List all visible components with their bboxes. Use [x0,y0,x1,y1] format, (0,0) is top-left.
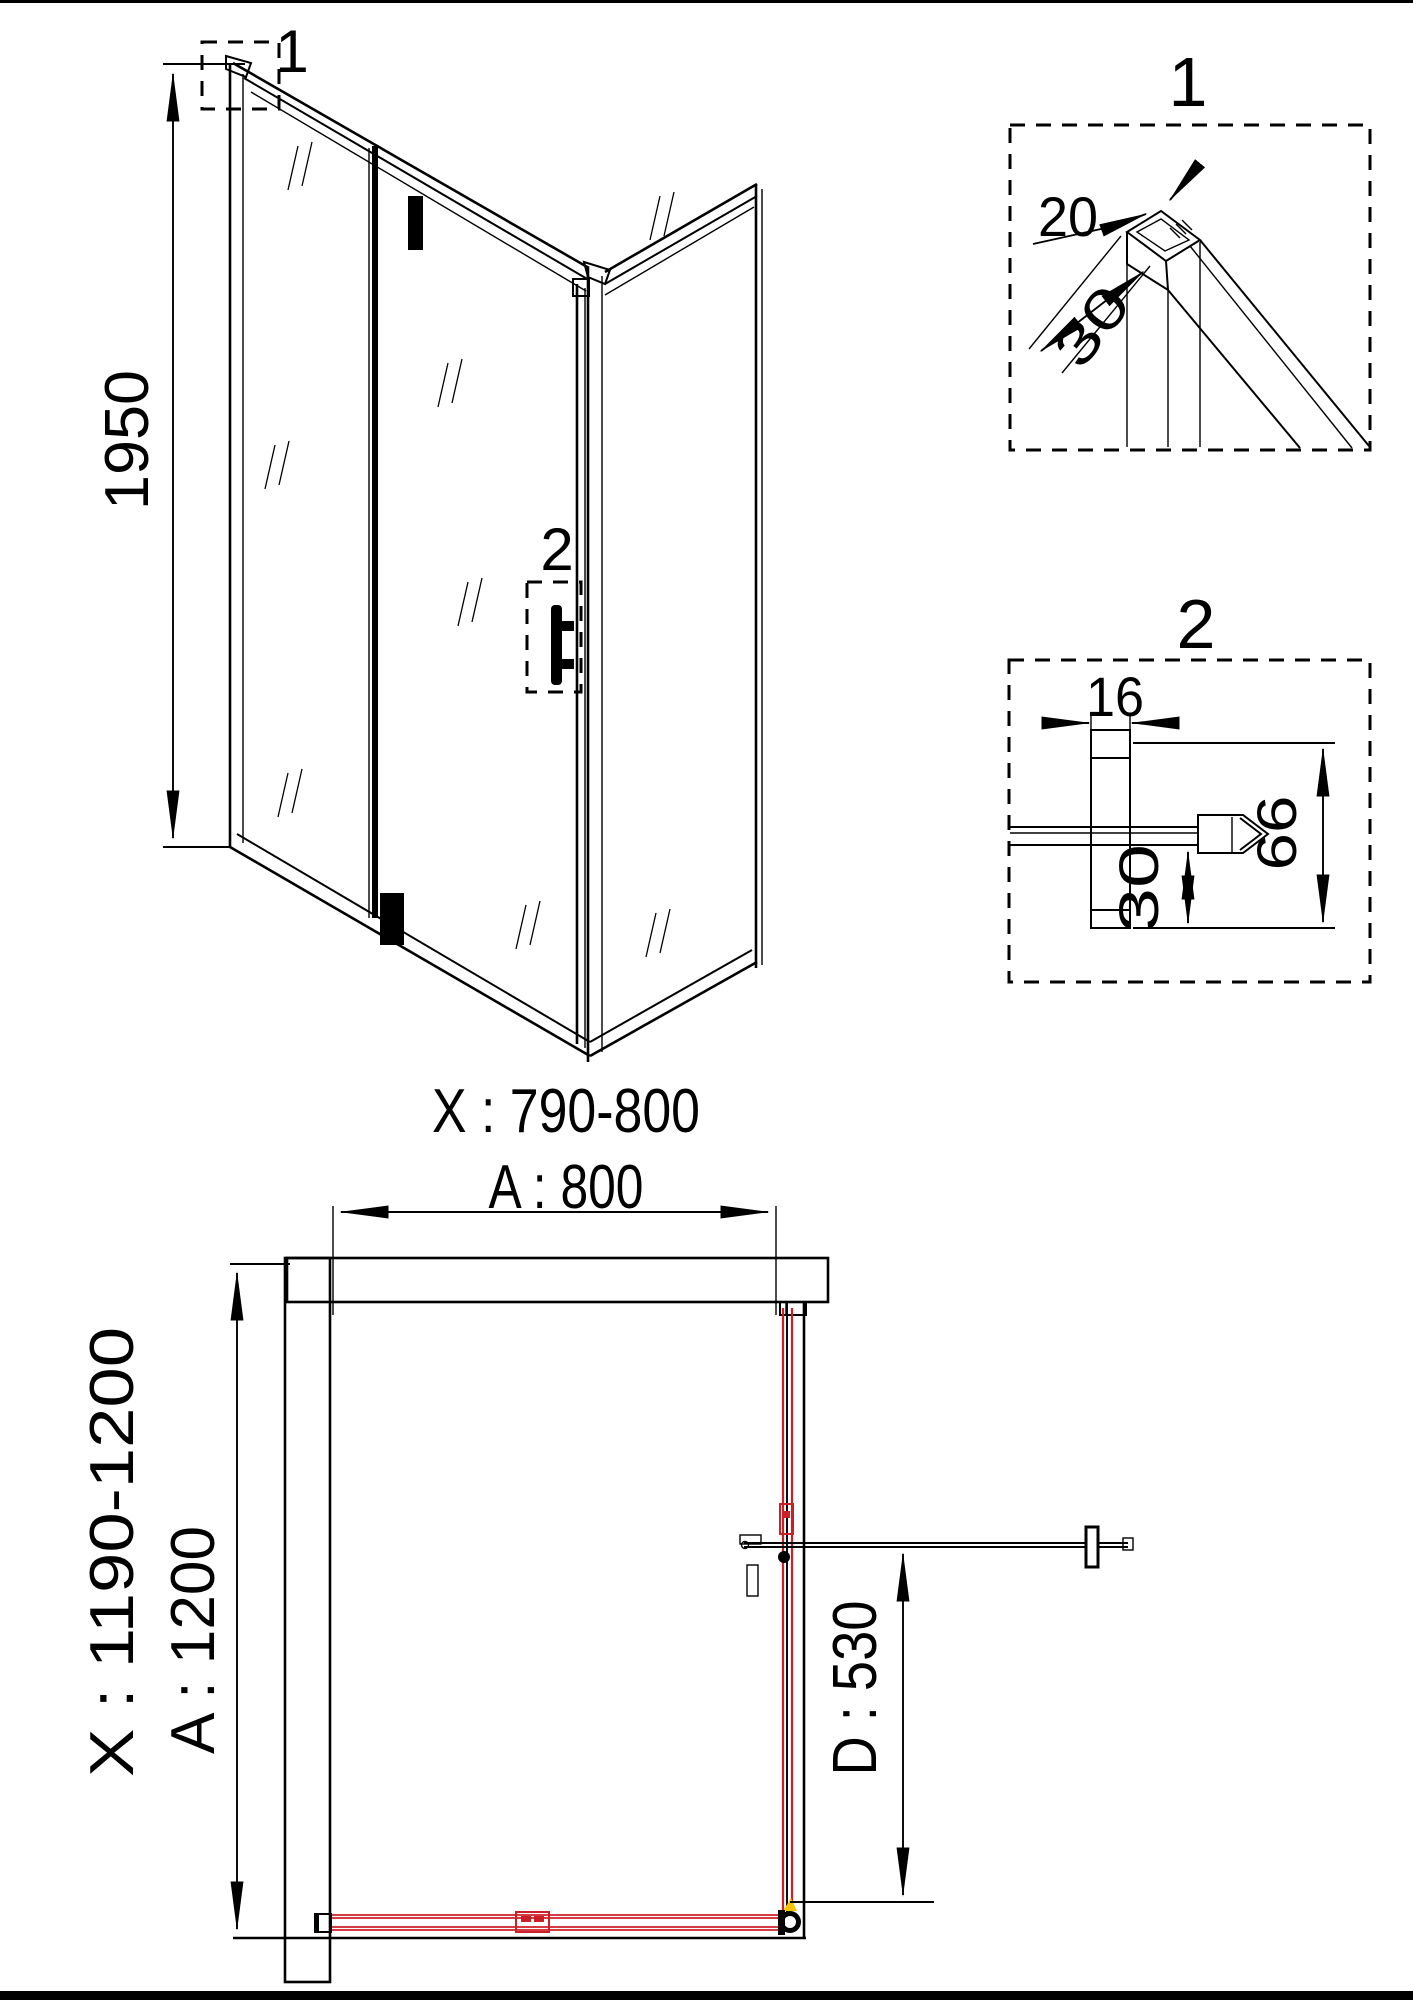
bottom-border [0,1991,1413,2000]
wall-left [285,1258,330,1982]
detail-view-2: 2 16 66 [1009,585,1370,982]
door-hinge-pillar [369,146,423,945]
dimension-door-d530: D : 530 [790,1554,934,1902]
rail-profile-isometric [1127,211,1369,448]
glass-reflections [265,142,674,957]
door-glass-red-fills [521,1511,790,1922]
left-front-post [226,56,251,847]
plan-door-width: D : 530 [821,1601,890,1776]
door-handle [551,605,574,685]
dimension-20: 20 [1033,167,1197,248]
back-right-post [756,184,762,968]
pivot-block [778,1910,785,1935]
top-border [0,0,1413,3]
shower-enclosure-drawing: 1 2 1950 1 [0,0,1413,2000]
top-pivot-bracket [408,196,423,250]
front-bottom-rail [230,834,590,1056]
center-corner-post [584,262,610,1062]
dim-66-value: 66 [1245,796,1308,871]
pivot-yellow-marker [783,1898,797,1911]
right-top-rail [605,184,757,295]
pivot-corner [778,1898,799,1935]
bottom-pivot-bracket [380,893,404,945]
dim-30-handle-value: 30 [1107,844,1170,932]
plan-width-range: X : 790-800 [432,1077,700,1146]
dimension-30-profile: 30 [1029,236,1150,379]
detail-1-box [1010,125,1370,450]
plan-depth-range: X : 1190-1200 [78,1327,147,1777]
detail-2-label: 2 [1177,585,1216,663]
glass-section [1010,827,1198,845]
right-bottom-rail [590,950,757,1056]
technical-drawing-page: 1 2 1950 1 [0,0,1413,2000]
view-3d: 1 2 1950 [93,18,762,1062]
front-top-rail [233,63,589,291]
dimension-height-1950: 1950 [93,64,245,847]
wall-top [287,1258,828,1302]
height-value: 1950 [93,370,162,510]
callout-2-label: 2 [540,516,573,583]
dimension-30-handle: 30 [1107,844,1188,932]
dim-16-value: 16 [1086,665,1144,728]
door-pivot-dot [778,1551,790,1563]
callout-1-label: 1 [275,18,308,85]
track-wall-bracket [315,1914,331,1932]
door-glass-red [332,1308,793,1932]
door-handle-plan [1086,1527,1098,1567]
open-door-plan [740,1527,1133,1596]
dimension-16: 16 [1043,665,1177,734]
detail-2-box [1009,660,1370,982]
dimension-depth-a1200: X : 1190-1200 A : 1200 [78,1264,290,1929]
hinge-body [747,1565,758,1596]
plan-depth-nominal: A : 1200 [159,1526,228,1754]
detail-1-label: 1 [1169,43,1208,121]
dimension-width-a800 [333,1206,776,1315]
plan-view: X : 790-800 A : 800 X : 1190-1200 A : 12… [78,1077,1133,1982]
dim-20-value: 20 [1038,185,1098,248]
detail-view-1: 1 20 30 [1010,43,1370,450]
